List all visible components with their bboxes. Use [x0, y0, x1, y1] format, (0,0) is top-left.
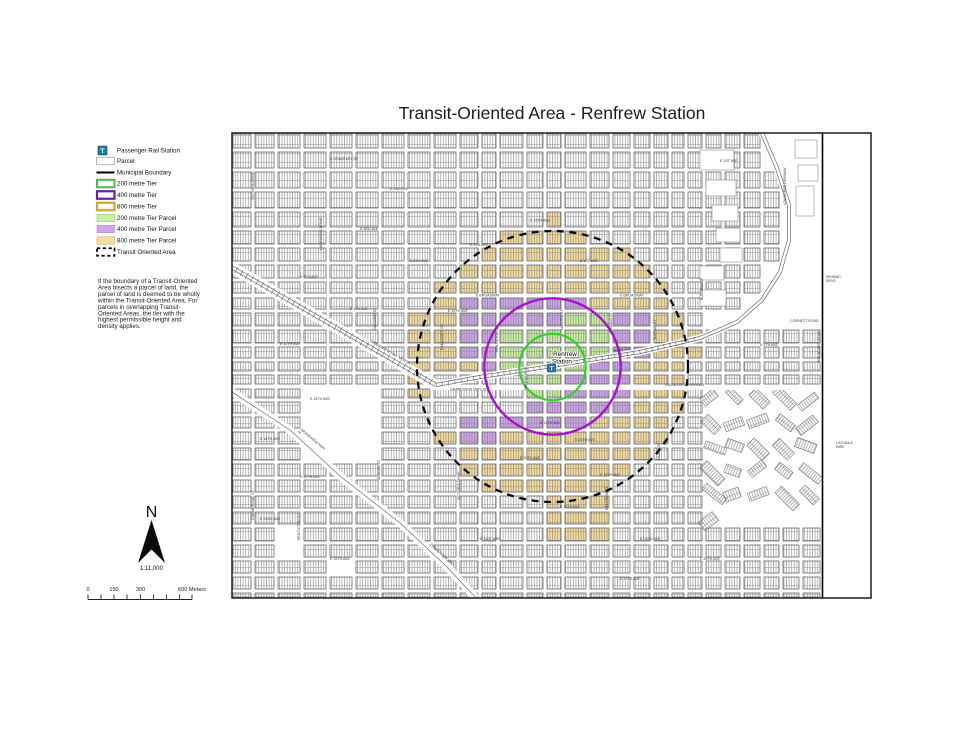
svg-text:KAMLOOPS ST: KAMLOOPS ST [440, 323, 444, 350]
svg-text:GRANDVIEW HWY SO: GRANDVIEW HWY SO [450, 388, 488, 392]
svg-text:E 1ST AVE: E 1ST AVE [720, 159, 738, 163]
svg-text:E 3RD AVE: E 3RD AVE [360, 227, 379, 231]
svg-text:Renfrew: Renfrew [553, 351, 577, 358]
svg-text:E 18TH AVE: E 18TH AVE [600, 473, 621, 477]
svg-text:Passenger Rail Station: Passenger Rail Station [117, 148, 181, 155]
svg-text:CORNETT ROAD: CORNETT ROAD [790, 319, 819, 323]
svg-text:LOUGHEED HIGHWAY: LOUGHEED HIGHWAY [783, 166, 787, 205]
svg-text:PENTICTON ST: PENTICTON ST [297, 513, 301, 540]
svg-text:N: N [146, 504, 158, 521]
svg-text:RENFREW ST: RENFREW ST [524, 365, 528, 390]
svg-text:200 metre Tier: 200 metre Tier [117, 181, 157, 188]
svg-text:E 2ND AVE: E 2ND AVE [390, 187, 409, 191]
svg-text:COMMERCIAL ST: COMMERCIAL ST [251, 489, 255, 520]
svg-text:600 Meters: 600 Meters [178, 587, 206, 593]
svg-text:400 metre Tier Parcel: 400 metre Tier Parcel [117, 226, 176, 233]
svg-text:PENTICTON ST: PENTICTON ST [495, 325, 499, 352]
svg-text:BOUNDARY ROAD: BOUNDARY ROAD [817, 330, 821, 362]
svg-text:KASLO ST: KASLO ST [657, 442, 661, 460]
svg-text:E 22ND AVE: E 22ND AVE [640, 537, 661, 541]
svg-text:NOOTKA ST: NOOTKA ST [560, 309, 564, 330]
svg-text:E 15TH AVE: E 15TH AVE [530, 219, 551, 223]
svg-text:VICTORIA DRIVE: VICTORIA DRIVE [251, 171, 255, 200]
svg-text:BURRELL ST: BURRELL ST [700, 277, 704, 300]
svg-text:E 5TH AVE: E 5TH AVE [470, 243, 489, 247]
svg-text:E 20TH AVE: E 20TH AVE [560, 505, 581, 509]
svg-text:E 1ST AVE: E 1ST AVE [580, 259, 598, 263]
svg-text:E 10TH AVE: E 10TH AVE [448, 309, 469, 313]
svg-text:T: T [550, 366, 554, 373]
svg-text:E 25TH AVE: E 25TH AVE [330, 557, 351, 561]
svg-text:E 5TH AVE: E 5TH AVE [760, 343, 779, 347]
svg-text:1:11,000: 1:11,000 [140, 566, 164, 572]
svg-text:E 6TH AVE: E 6TH AVE [410, 259, 429, 263]
svg-text:E GRAVELEY ST: E GRAVELEY ST [330, 157, 359, 161]
svg-text:DRIVE: DRIVE [826, 279, 836, 283]
svg-text:SLOCAN ST: SLOCAN ST [653, 319, 657, 340]
svg-text:E 18TH AVE: E 18TH AVE [260, 437, 281, 441]
svg-text:Parcel: Parcel [117, 158, 135, 165]
svg-text:Transit Oriented Area: Transit Oriented Area [117, 249, 176, 256]
svg-text:GRANDVIEW HIGHWAY: GRANDVIEW HIGHWAY [665, 383, 706, 387]
svg-text:E 26TH AVE: E 26TH AVE [700, 557, 721, 561]
svg-text:E 21ST AVE: E 21ST AVE [480, 537, 500, 541]
svg-text:0: 0 [86, 587, 89, 593]
svg-text:E 27TH AVE: E 27TH AVE [620, 577, 641, 581]
svg-text:E 15TH AVE: E 15TH AVE [310, 397, 331, 401]
svg-text:E BROADWAY: E BROADWAY [476, 294, 501, 298]
svg-text:E 12TH AVE: E 12TH AVE [280, 342, 301, 346]
svg-text:400 metre Tier: 400 metre Tier [117, 192, 157, 199]
svg-text:E 9TH AVE: E 9TH AVE [350, 307, 369, 311]
svg-text:SLOCAN ST: SLOCAN ST [377, 459, 381, 480]
svg-text:PARK: PARK [836, 445, 845, 449]
svg-text:800 metre Tier: 800 metre Tier [117, 204, 157, 211]
svg-text:NANAIMO ST: NANAIMO ST [373, 307, 377, 330]
svg-text:E 15TH AVE: E 15TH AVE [575, 438, 596, 442]
svg-text:150: 150 [109, 587, 118, 593]
svg-text:300: 300 [136, 587, 145, 593]
svg-text:LAKEWOOD DRIVE: LAKEWOOD DRIVE [319, 217, 323, 250]
svg-text:E 20TH AVE: E 20TH AVE [300, 475, 321, 479]
svg-text:E 16TH AVE: E 16TH AVE [520, 456, 541, 460]
svg-text:E 22ND AVE: E 22ND AVE [260, 517, 281, 521]
svg-text:800 metre Tier Parcel: 800 metre Tier Parcel [117, 238, 176, 245]
svg-text:E 14TH AVE: E 14TH AVE [540, 421, 561, 425]
svg-text:E 8TH AVE: E 8TH AVE [300, 275, 319, 279]
svg-text:VICTORIA DRIVE: VICTORIA DRIVE [457, 471, 461, 500]
svg-text:Municipal Boundary: Municipal Boundary [117, 170, 172, 177]
svg-text:E BROADWAY: E BROADWAY [620, 294, 645, 298]
svg-text:RENFREW ST: RENFREW ST [605, 485, 609, 510]
svg-text:Transit-Oriented Area - Renfre: Transit-Oriented Area - Renfrew Station [399, 103, 706, 123]
svg-text:200 metre Tier Parcel: 200 metre Tier Parcel [117, 215, 176, 222]
svg-text:density applies.: density applies. [98, 323, 141, 330]
svg-text:KASLO ST: KASLO ST [609, 312, 613, 330]
